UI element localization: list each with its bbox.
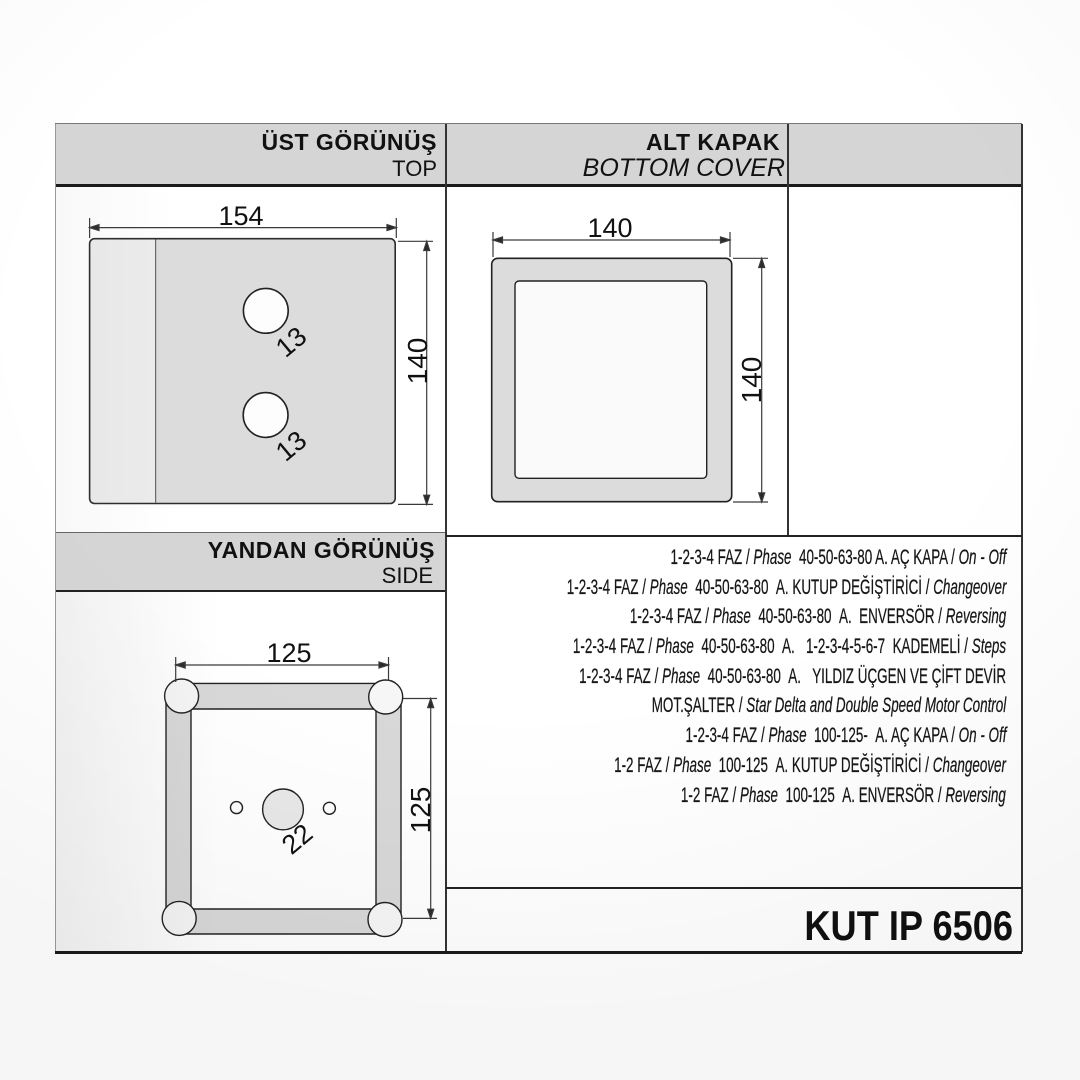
svg-text:125: 125 (405, 787, 436, 834)
svg-text:125: 125 (266, 638, 311, 668)
svg-text:154: 154 (218, 201, 263, 231)
svg-text:140: 140 (736, 357, 767, 404)
svg-text:140: 140 (587, 213, 632, 243)
svg-text:140: 140 (402, 338, 433, 385)
